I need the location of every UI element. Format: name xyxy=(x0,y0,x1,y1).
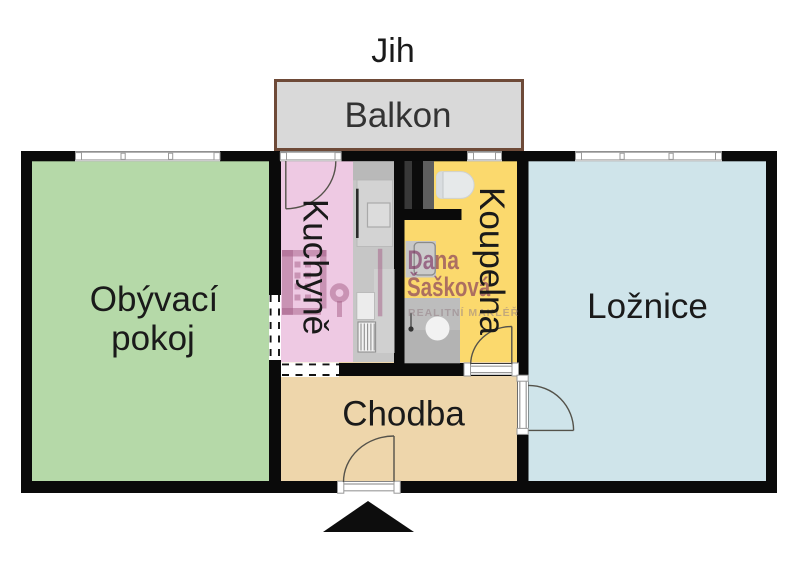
svg-text:Kuchyně: Kuchyně xyxy=(296,199,335,335)
svg-text:pokoj: pokoj xyxy=(111,319,195,358)
svg-text:Dana: Dana xyxy=(408,246,460,276)
svg-text:Obývací: Obývací xyxy=(90,280,219,319)
svg-text:Chodba: Chodba xyxy=(342,395,465,434)
svg-text:Koupelna: Koupelna xyxy=(472,187,511,335)
svg-text:Balkon: Balkon xyxy=(344,96,451,135)
svg-text:Ložnice: Ložnice xyxy=(587,287,708,326)
svg-text:Jih: Jih xyxy=(371,32,414,70)
